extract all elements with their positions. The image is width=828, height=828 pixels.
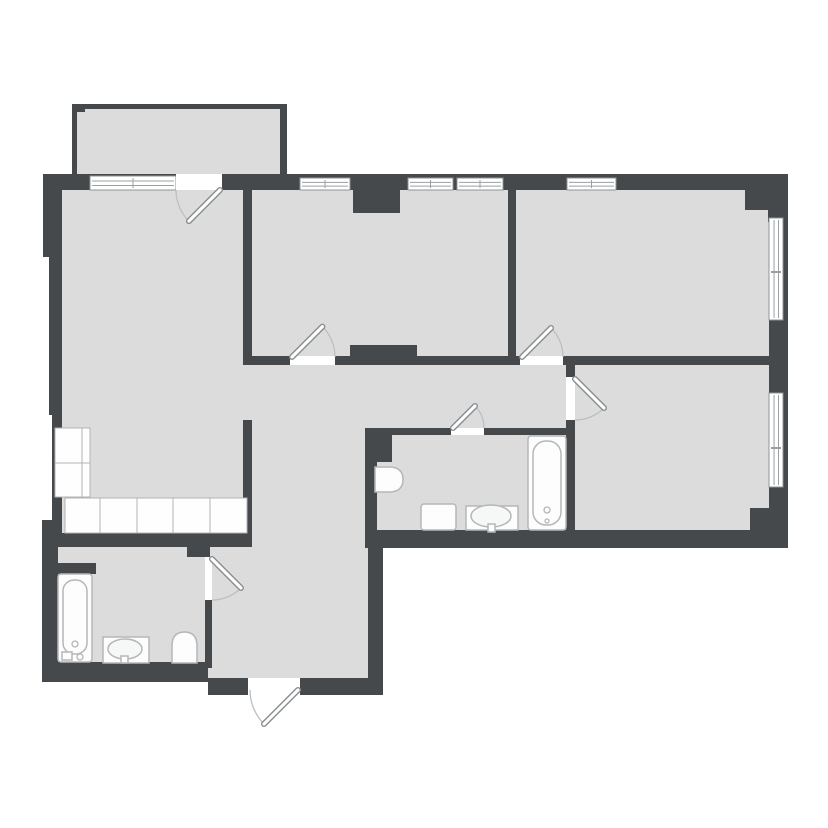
wc-top-wall bbox=[42, 563, 96, 574]
bedrooms-divider-wall bbox=[508, 190, 516, 365]
balcony-wall-corner bbox=[72, 104, 85, 112]
exterior-notch bbox=[40, 682, 208, 702]
window-bedroom2-right bbox=[769, 218, 783, 320]
hallway-top-wall-c bbox=[563, 356, 770, 365]
pier-stub-bottom bbox=[350, 345, 417, 356]
sink-faucet bbox=[121, 656, 128, 663]
floor-layer bbox=[40, 109, 788, 702]
livingroom-bottom-wall bbox=[43, 533, 252, 547]
top-wall-seg3 bbox=[503, 174, 567, 190]
balcony-door-opening bbox=[176, 174, 222, 190]
bathroom-top-wall-b bbox=[484, 428, 566, 435]
washing-machine bbox=[421, 504, 456, 530]
hallway-top-wall-b bbox=[335, 356, 520, 365]
balcony-wall-top bbox=[72, 104, 287, 109]
wc-corner-stub bbox=[187, 533, 210, 557]
window-bedroom1-c bbox=[457, 178, 503, 190]
window-bedroom2-right-frame bbox=[769, 218, 783, 320]
pier-stub-top bbox=[353, 190, 400, 213]
kitchen-counter-cell bbox=[210, 498, 247, 533]
wc-bottom-wall bbox=[42, 662, 208, 682]
entrance-door-leaf-face bbox=[264, 690, 298, 724]
top-wall-pier bbox=[350, 174, 408, 190]
right-corner-block bbox=[745, 174, 788, 210]
toilet bbox=[375, 467, 403, 492]
kitchen-counter-cell bbox=[65, 498, 100, 533]
entrance-door bbox=[250, 690, 298, 724]
right-wall-mid bbox=[769, 320, 788, 393]
bathtub-inner bbox=[63, 580, 87, 654]
floor-plan-page bbox=[0, 0, 828, 828]
bathtub-faucet bbox=[62, 652, 72, 660]
kitchen-cabinet bbox=[55, 428, 90, 463]
bedroom3-left-wall-bottom bbox=[566, 420, 575, 530]
hallway-top-wall-a bbox=[243, 356, 290, 365]
window-livingroom-balcony bbox=[90, 176, 176, 190]
left-wall-mid bbox=[49, 257, 62, 415]
bottom-band bbox=[365, 530, 788, 548]
bedroom1-door-opening bbox=[290, 356, 335, 365]
left-wall-upper bbox=[43, 174, 62, 257]
kitchen-counter-cell bbox=[100, 498, 137, 533]
balcony-wall-right bbox=[280, 104, 287, 174]
window-bedroom1-a bbox=[300, 178, 350, 190]
right-wall-low bbox=[769, 487, 788, 508]
kitchen-cabinet bbox=[55, 463, 90, 497]
livingroom-right-wall-upper bbox=[243, 190, 252, 365]
sink-faucet bbox=[488, 524, 495, 532]
corridor-right-wall bbox=[368, 535, 383, 695]
corridor-bottom-wall-a bbox=[208, 678, 248, 695]
kitchen-counter-cell bbox=[173, 498, 210, 533]
top-window-mullion bbox=[453, 174, 457, 190]
bedroom2-door-opening bbox=[520, 356, 563, 365]
toilet bbox=[172, 632, 197, 663]
floor-plan-drawing bbox=[0, 0, 828, 828]
bathroom-left-block bbox=[365, 428, 392, 462]
bedroom3-left-wall-top bbox=[566, 365, 575, 377]
window-bedroom2-top bbox=[567, 178, 616, 190]
right-step-bottom bbox=[750, 508, 788, 533]
window-bedroom1-b bbox=[408, 178, 453, 190]
wc-door-opening bbox=[205, 557, 212, 600]
entrance-door-swing-arc bbox=[250, 690, 264, 724]
kitchen-counter-cell bbox=[137, 498, 173, 533]
bedroom3-door-opening bbox=[566, 377, 575, 420]
window-bedroom3-right bbox=[769, 393, 783, 487]
window-bedroom3-right-frame bbox=[769, 393, 783, 487]
wc-right-wall bbox=[205, 600, 212, 668]
bathroom-top-wall-a bbox=[392, 428, 451, 435]
